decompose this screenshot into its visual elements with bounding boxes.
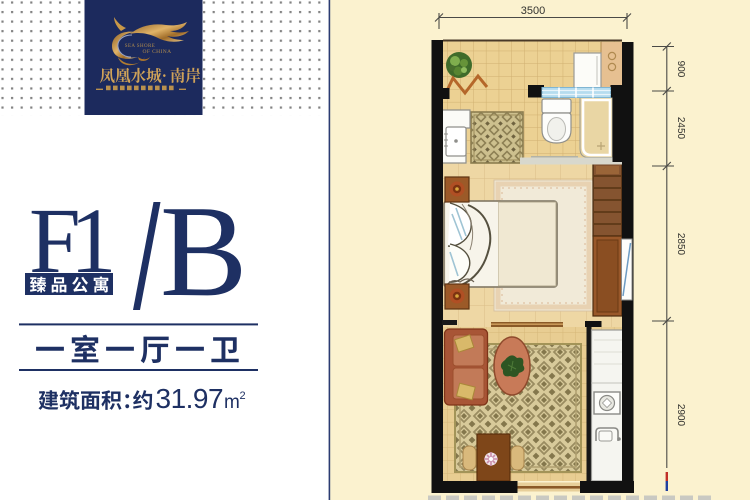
- svg-text:2900: 2900: [675, 404, 686, 427]
- svg-text:m: m: [224, 392, 240, 413]
- svg-text:3500: 3500: [521, 5, 545, 17]
- svg-text:31.97: 31.97: [156, 383, 224, 414]
- svg-text:2: 2: [240, 390, 246, 402]
- svg-text:2450: 2450: [675, 117, 686, 140]
- svg-text:B: B: [160, 179, 247, 324]
- svg-text:900: 900: [675, 61, 686, 78]
- svg-text:2850: 2850: [675, 233, 686, 256]
- svg-text:OF CHINA: OF CHINA: [142, 49, 171, 55]
